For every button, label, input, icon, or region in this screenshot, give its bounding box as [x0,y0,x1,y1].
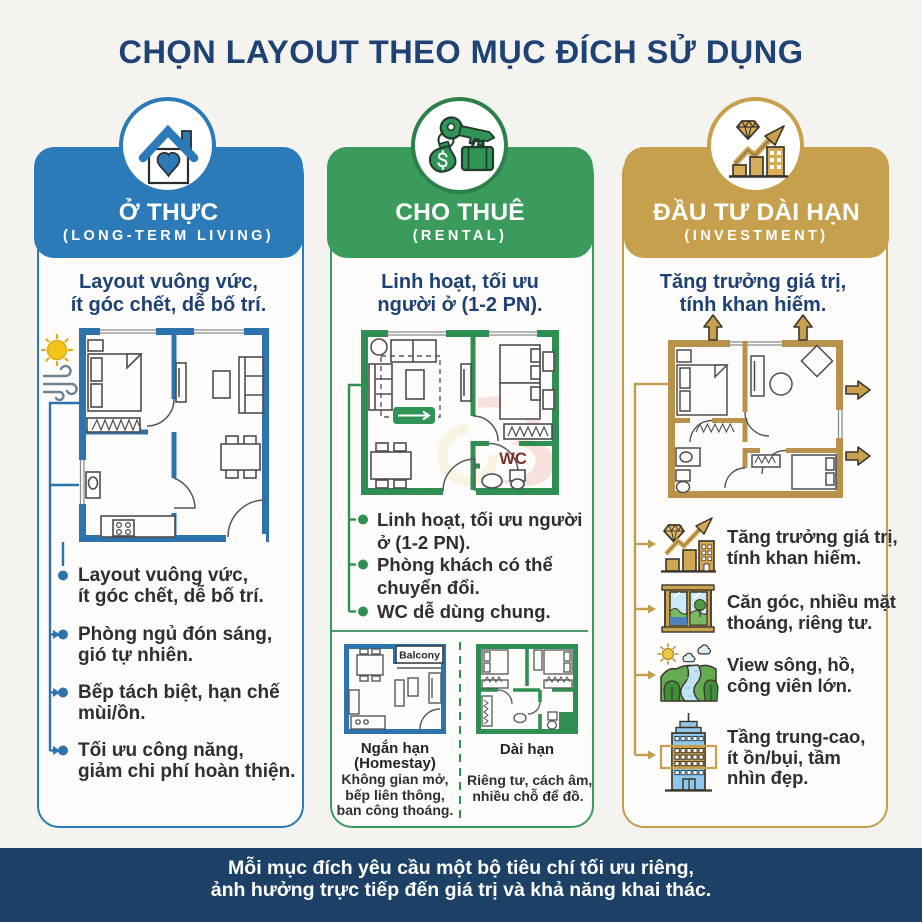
svg-text:Balcony: Balcony [399,650,440,662]
svg-text:WC: WC [499,450,527,468]
